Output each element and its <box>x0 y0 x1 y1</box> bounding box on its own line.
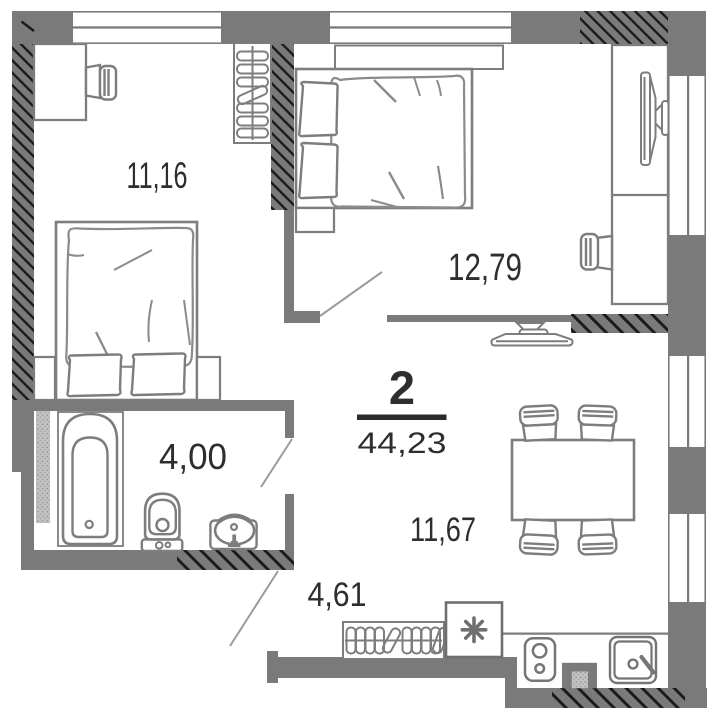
svg-text:4,61: 4,61 <box>308 576 367 614</box>
svg-text:11,67: 11,67 <box>410 511 476 549</box>
svg-text:44,23: 44,23 <box>358 427 447 460</box>
svg-text:4,00: 4,00 <box>159 436 227 477</box>
svg-text:11,16: 11,16 <box>127 155 188 196</box>
svg-text:12,79: 12,79 <box>448 247 522 289</box>
svg-text:2: 2 <box>389 361 415 414</box>
